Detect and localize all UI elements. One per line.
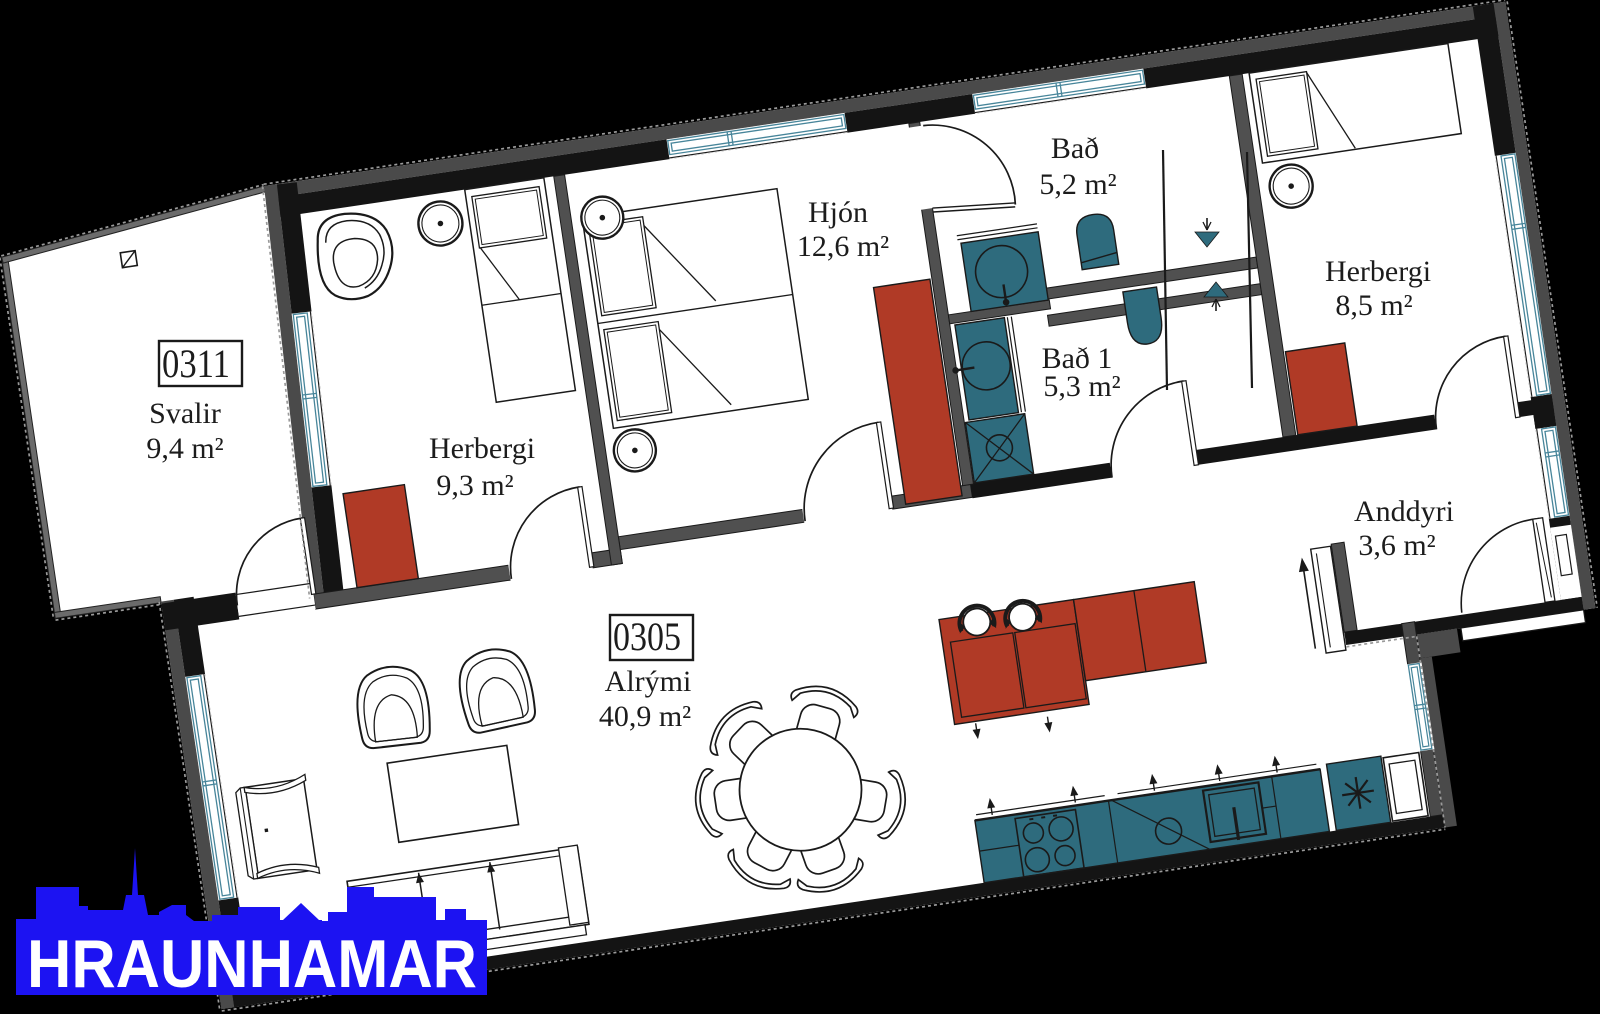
svg-text:Bað: Bað xyxy=(1051,132,1099,165)
svg-text:5,3 m²: 5,3 m² xyxy=(1043,370,1120,403)
svg-text:Herbergi: Herbergi xyxy=(429,432,535,465)
svg-text:Svalir: Svalir xyxy=(149,397,221,430)
svg-text:5,2 m²: 5,2 m² xyxy=(1039,168,1116,201)
svg-text:Hjón: Hjón xyxy=(808,196,868,229)
svg-text:12,6 m²: 12,6 m² xyxy=(797,230,889,263)
svg-text:HRAUNHAMAR: HRAUNHAMAR xyxy=(27,926,477,1002)
svg-text:3,6 m²: 3,6 m² xyxy=(1358,529,1435,562)
svg-text:8,5 m²: 8,5 m² xyxy=(1335,289,1412,322)
svg-text:40,9 m²: 40,9 m² xyxy=(599,700,691,733)
svg-text:Herbergi: Herbergi xyxy=(1325,255,1431,288)
svg-text:9,3 m²: 9,3 m² xyxy=(436,469,513,502)
svg-text:Alrými: Alrými xyxy=(605,665,692,698)
svg-text:0311: 0311 xyxy=(162,341,230,386)
svg-text:Anddyri: Anddyri xyxy=(1354,495,1454,528)
svg-text:9,4 m²: 9,4 m² xyxy=(146,432,223,465)
svg-text:0305: 0305 xyxy=(613,614,681,659)
